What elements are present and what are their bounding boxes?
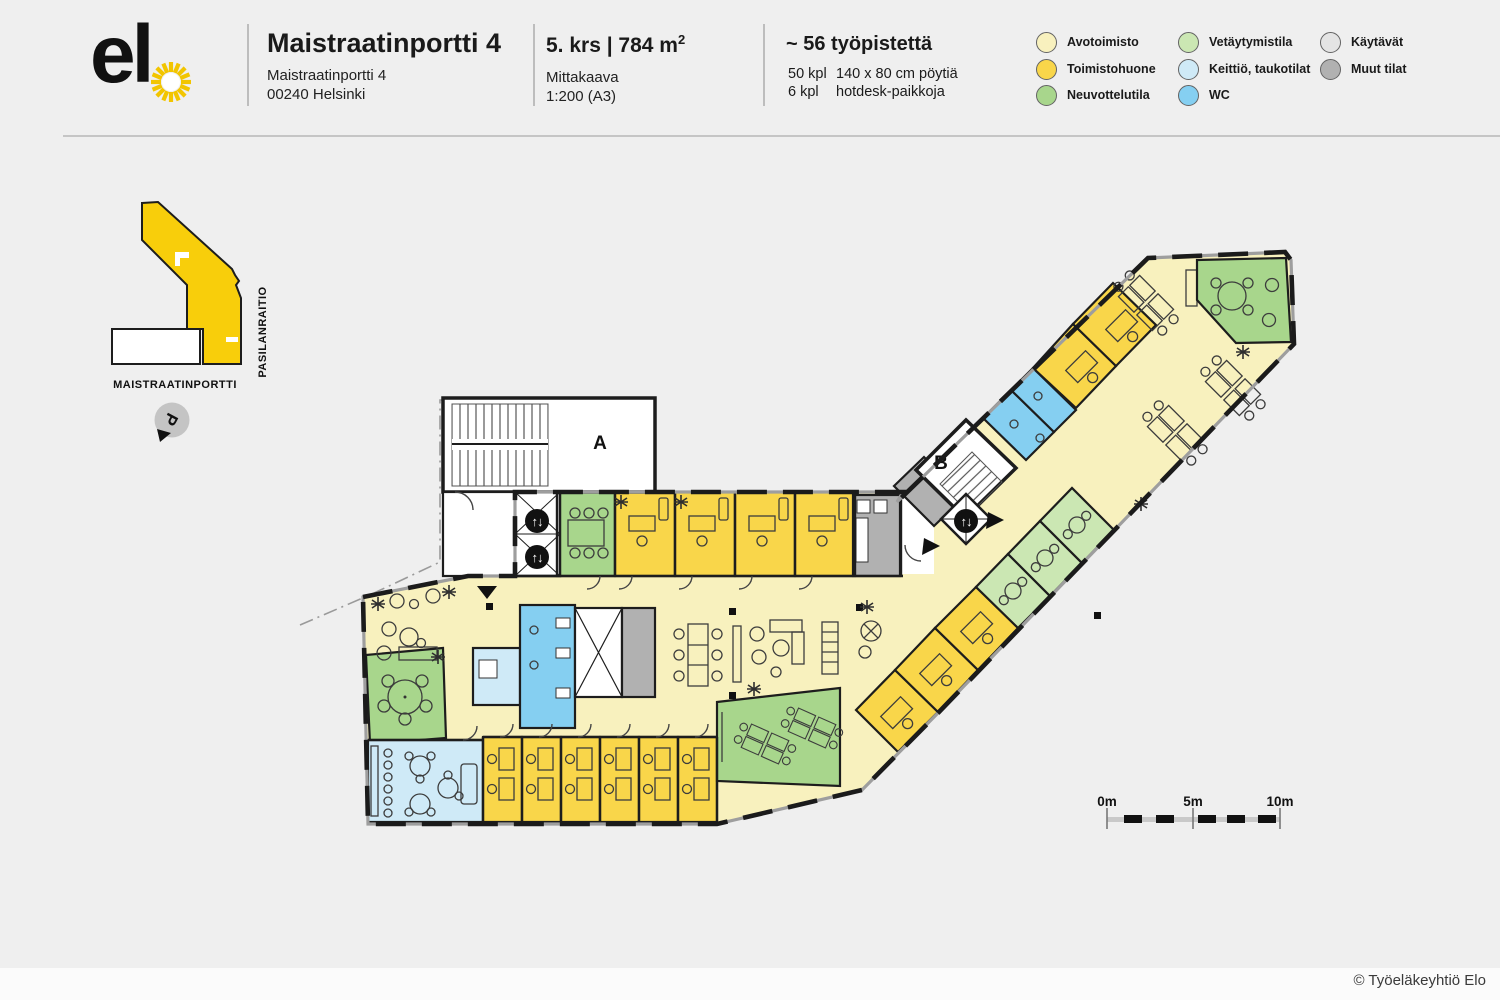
lounge-room-green <box>366 648 446 744</box>
legend-swatch <box>1178 85 1199 106</box>
stairwell-a: A <box>443 398 655 492</box>
desk-count: 50 kpl <box>788 66 836 84</box>
page-title: Maistraatinportti 4 <box>267 28 501 59</box>
legend-item-toimistohuone: Toimistohuone <box>1036 58 1156 80</box>
elevator-shaft: ↑↓ ↑↓ <box>515 492 560 576</box>
scale-label: Mittakaava <box>546 68 619 87</box>
legend-item-neuvottelutila: Neuvottelutila <box>1036 84 1150 106</box>
legend-swatch <box>1036 85 1057 106</box>
entry-block <box>443 492 515 576</box>
address-line-1: Maistraatinportti 4 <box>267 66 386 85</box>
header-divider-1 <box>247 24 249 106</box>
address: Maistraatinportti 4 00240 Helsinki <box>267 66 386 104</box>
legend-item-kaytavat: Käytävät <box>1320 31 1403 53</box>
logo-text: el <box>90 14 150 96</box>
scale-0m: 0m <box>1097 794 1117 809</box>
header-rule <box>63 135 1500 137</box>
footer-strip <box>0 968 1500 1000</box>
floorplan-page: A ↑↓ ↑↓ B ↑↓ <box>0 0 1500 1000</box>
hotdesk-desc: hotdesk-paikkoja <box>836 84 958 102</box>
scale-5m: 5m <box>1183 794 1203 809</box>
legend-item-avotoimisto: Avotoimisto <box>1036 31 1139 53</box>
floorplan-drawing: A ↑↓ ↑↓ B ↑↓ <box>0 0 1500 1000</box>
legend-swatch <box>1178 32 1199 53</box>
site-map-neighbor-building <box>112 329 200 364</box>
hotdesk-count: 6 kpl <box>788 84 836 102</box>
desk-desc: 140 x 80 cm pöytiä <box>836 66 958 84</box>
stair-a-label: A <box>593 433 607 454</box>
elo-sun-icon <box>147 58 195 106</box>
floor-area: 5. krs | 784 m2 <box>546 32 685 58</box>
header-divider-2 <box>533 24 535 106</box>
scale-bar: 0m 5m 10m <box>1097 794 1293 829</box>
legend-swatch <box>1320 32 1341 53</box>
street-label-bottom: MAISTRAATINPORTTI <box>113 379 237 391</box>
legend-swatch <box>1178 59 1199 80</box>
scale-10m: 10m <box>1266 794 1293 809</box>
workstation-stats: 50 kpl 140 x 80 cm pöytiä 6 kpl hotdesk-… <box>788 66 958 101</box>
scale-info: Mittakaava 1:200 (A3) <box>546 68 619 106</box>
legend-item-wc: WC <box>1178 84 1230 106</box>
scale-value: 1:200 (A3) <box>546 87 619 106</box>
parking-icon: P <box>155 403 190 443</box>
kitchen-break-room <box>368 740 483 822</box>
legend-swatch <box>1320 59 1341 80</box>
legend-item-vetaytymistila: Vetäytymistila <box>1178 31 1292 53</box>
elevator-updown-icon: ↑↓ <box>532 514 543 529</box>
workstations-title: ~ 56 työpistettä <box>786 33 932 56</box>
site-map: MAISTRAATINPORTTI PASILANRAITIO P <box>112 202 269 442</box>
street-label-right: PASILANRAITIO <box>257 286 269 377</box>
header-divider-3 <box>763 24 765 106</box>
copyright: © Työeläkeyhtiö Elo <box>1353 972 1486 989</box>
legend-item-keittio: Keittiö, taukotilat <box>1178 58 1310 80</box>
legend-item-muut-tilat: Muut tilat <box>1320 58 1407 80</box>
meeting-room-top <box>557 492 615 576</box>
legend-swatch <box>1036 32 1057 53</box>
elevator-updown-icon: ↑↓ <box>532 550 543 565</box>
training-room-green <box>717 688 845 786</box>
utility-room-gray <box>853 495 900 576</box>
address-line-2: 00240 Helsinki <box>267 85 386 104</box>
legend-swatch <box>1036 59 1057 80</box>
elevator-updown-icon: ↑↓ <box>961 514 972 529</box>
